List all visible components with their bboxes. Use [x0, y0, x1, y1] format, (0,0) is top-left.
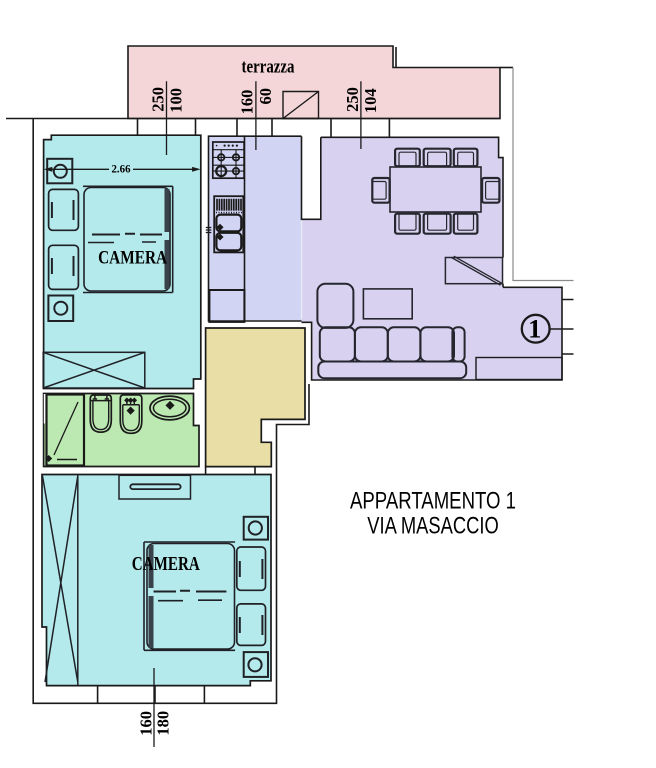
svg-text:160: 160: [136, 711, 155, 736]
svg-text:VIA MASACCIO: VIA MASACCIO: [367, 513, 499, 540]
svg-text:160: 160: [238, 90, 257, 115]
svg-text:CAMERA: CAMERA: [132, 554, 200, 575]
svg-text:250: 250: [343, 87, 362, 112]
svg-text:CAMERA: CAMERA: [98, 248, 167, 269]
svg-text:250: 250: [149, 87, 168, 112]
svg-text:terrazza: terrazza: [242, 57, 295, 78]
svg-text:2.66: 2.66: [112, 162, 131, 176]
svg-text:100: 100: [167, 88, 186, 113]
svg-text:180: 180: [154, 711, 173, 736]
svg-text:104: 104: [361, 88, 380, 113]
svg-text:APPARTAMENTO 1: APPARTAMENTO 1: [350, 487, 516, 514]
svg-text:1: 1: [528, 314, 541, 344]
svg-text:60: 60: [256, 88, 275, 105]
